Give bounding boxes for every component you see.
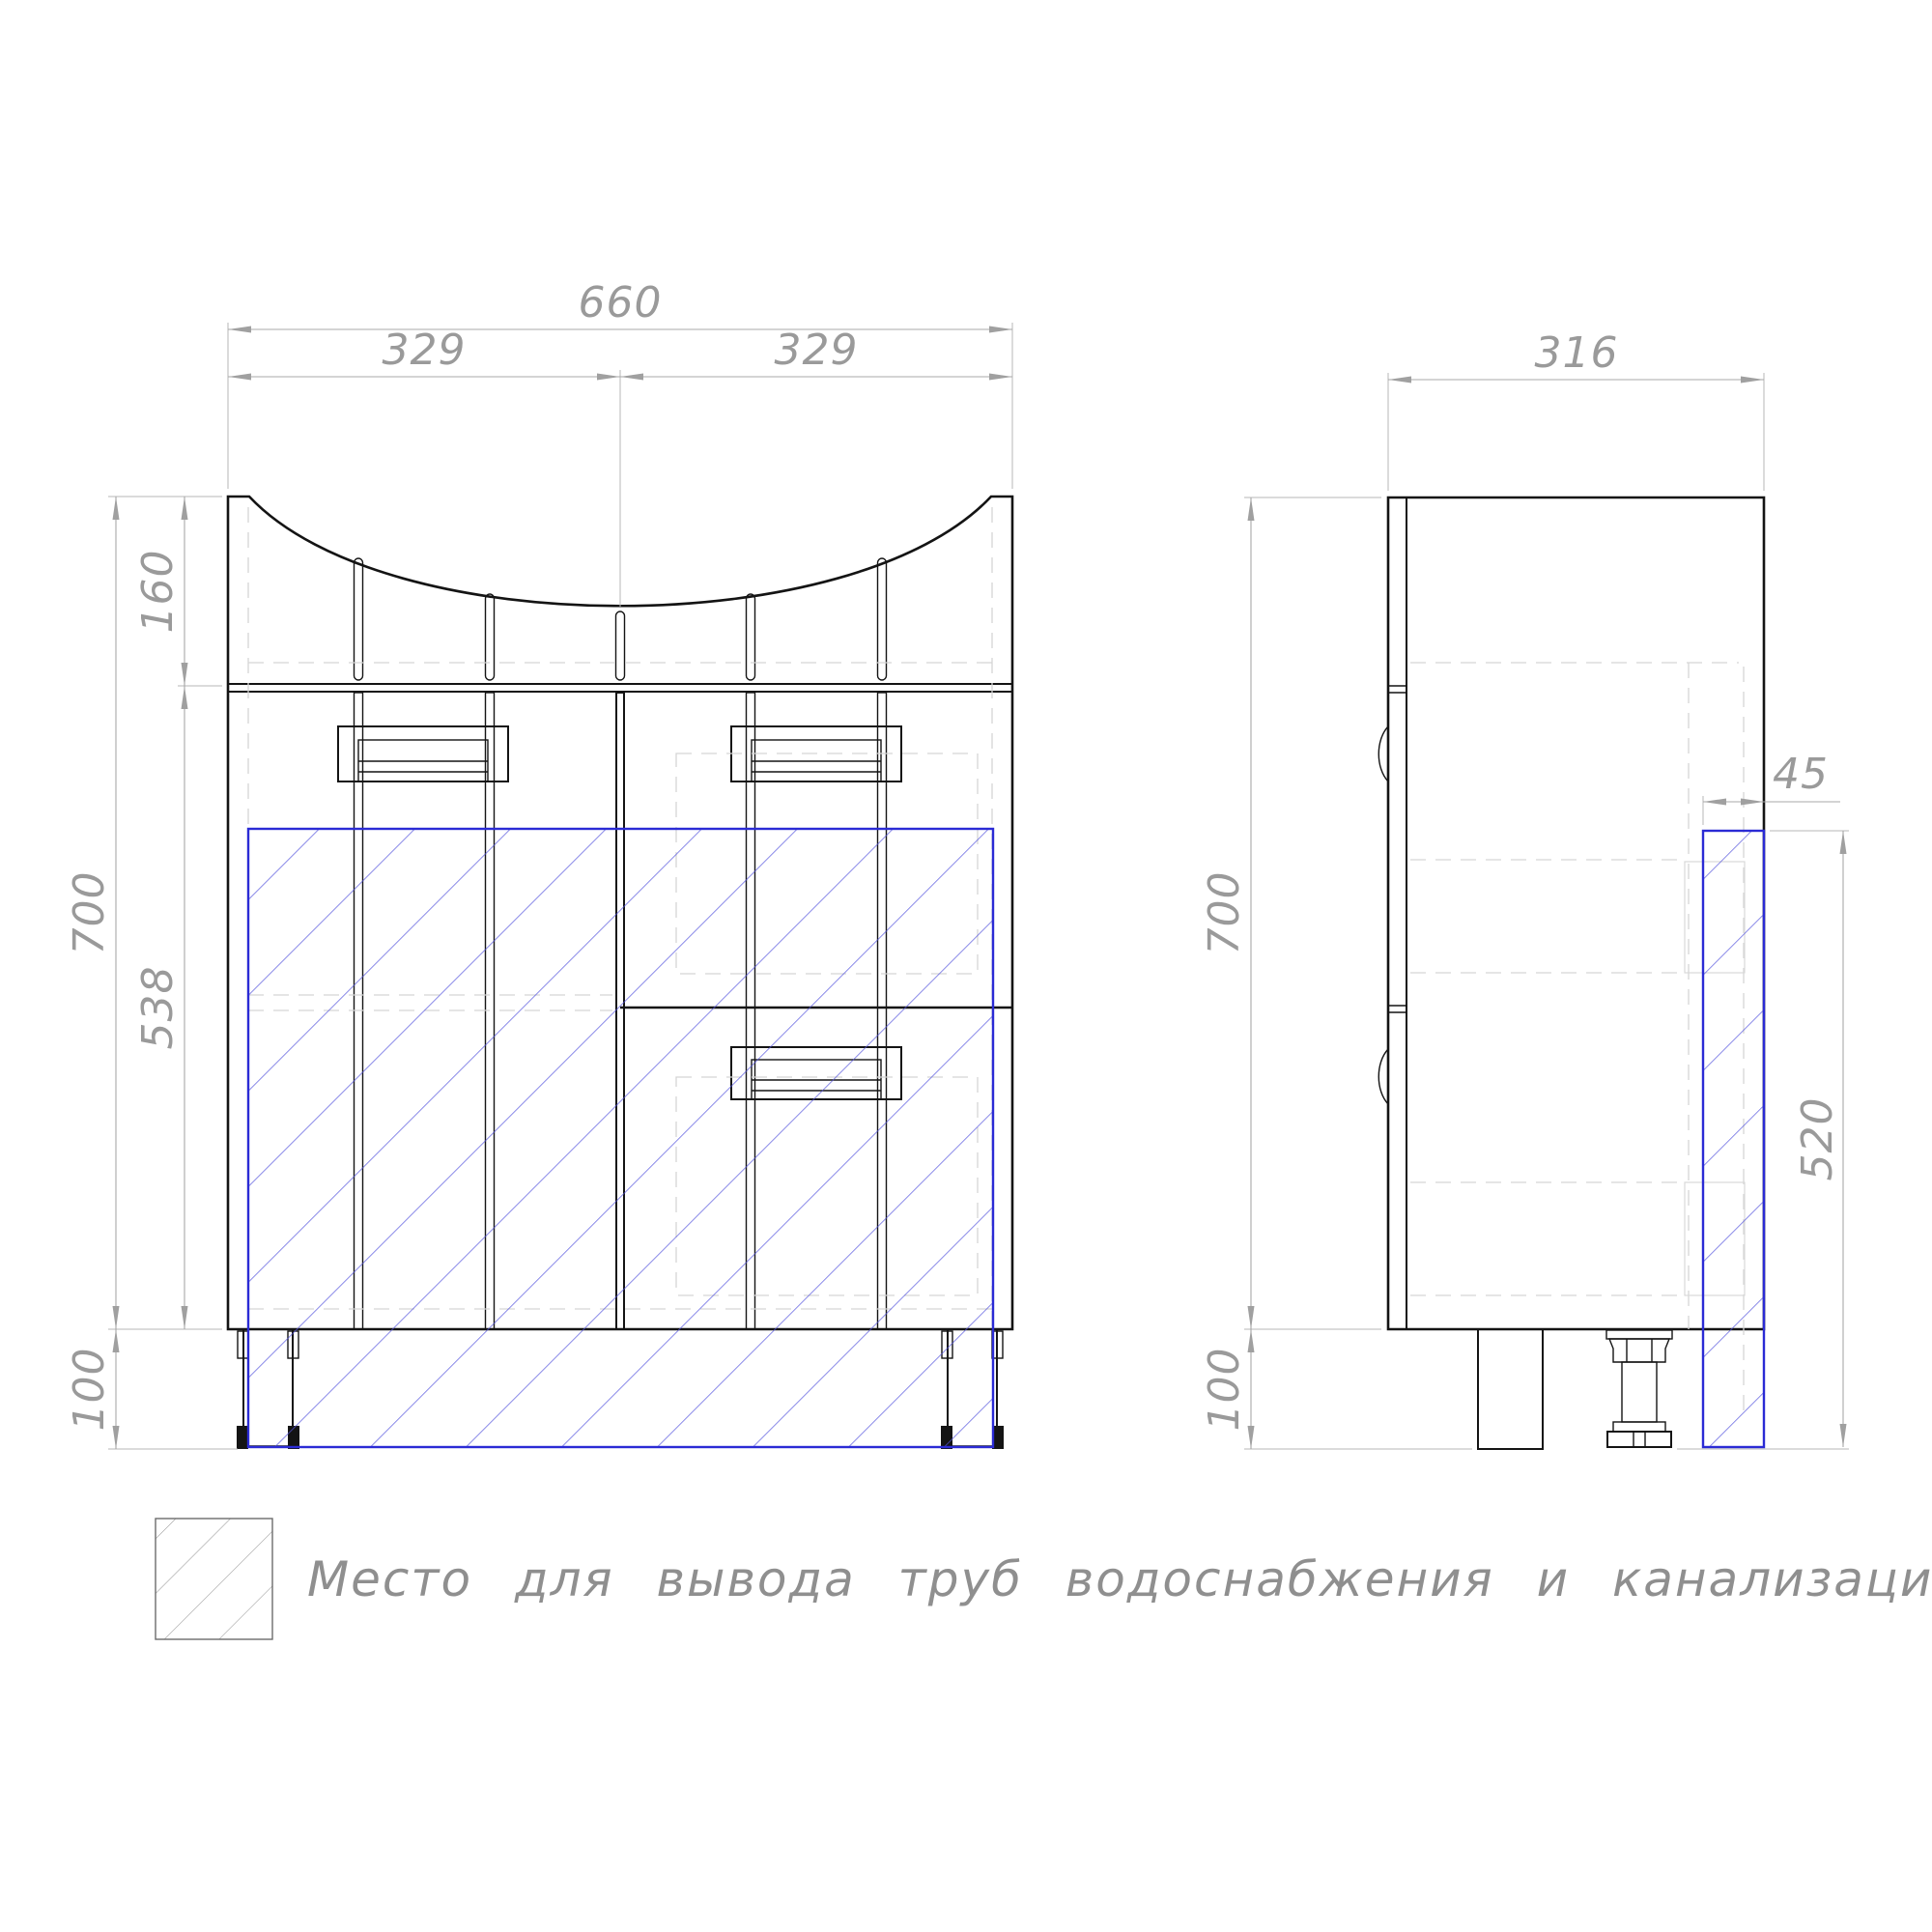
front-left-door-handle [338,726,508,781]
dim-label-front-width-left: 329 [383,326,467,375]
dim-front-legs-height: 100 [65,1329,116,1449]
dim-front-cabinet-height: 700 [65,497,116,1329]
dim-label-side-cabinet-height: 700 [1200,871,1249,955]
legend: Место для вывода труб водоснабжения и ка… [156,1519,1932,1639]
dim-front-apron-height: 160 [133,497,185,686]
dim-label-front-cabinet-height: 700 [65,871,114,955]
dim-label-front-legs-height: 100 [65,1348,114,1432]
dim-side-depth: 316 [1388,328,1764,491]
legend-text: Место для вывода труб водоснабжения и ка… [307,1551,1932,1607]
dim-label-side-depth: 316 [1535,328,1619,378]
side-front-leg [1478,1329,1543,1449]
dim-label-front-apron-height: 160 [133,550,183,634]
legend-hatch-swatch [156,1519,272,1639]
dim-front-width-halves: 329 329 [228,326,1012,607]
dim-front-body-height: 538 [133,686,185,1329]
side-upper-handle-profile [1378,726,1388,781]
technical-drawing: 660 329 329 160 538 [0,0,1932,1932]
front-pipe-zone-hatch [248,829,993,1447]
dim-label-side-pipe-zone-width: 45 [1773,750,1829,799]
side-view: 316 45 520 700 [1200,328,1849,1449]
dim-label-side-pipe-zone-height: 520 [1793,1097,1842,1181]
dim-side-legs-height: 100 [1200,1329,1251,1449]
side-lower-handle-profile [1378,1049,1388,1104]
side-pipe-zone-hatch [1703,831,1764,1447]
dim-label-front-width-total: 660 [579,278,663,327]
dim-side-cabinet-height: 700 [1200,497,1251,1329]
side-hidden-lines [1410,663,1745,1420]
dim-side-pipe-zone-width: 45 [1703,750,1840,825]
dim-label-front-width-right: 329 [775,326,859,375]
dim-label-side-legs-height: 100 [1200,1348,1249,1432]
drawing-sheet: 660 329 329 160 538 [0,0,1932,1932]
dim-label-front-body-height: 538 [133,966,183,1050]
side-adjustable-foot [1606,1330,1672,1447]
front-view: 660 329 329 160 538 [65,278,1012,1449]
